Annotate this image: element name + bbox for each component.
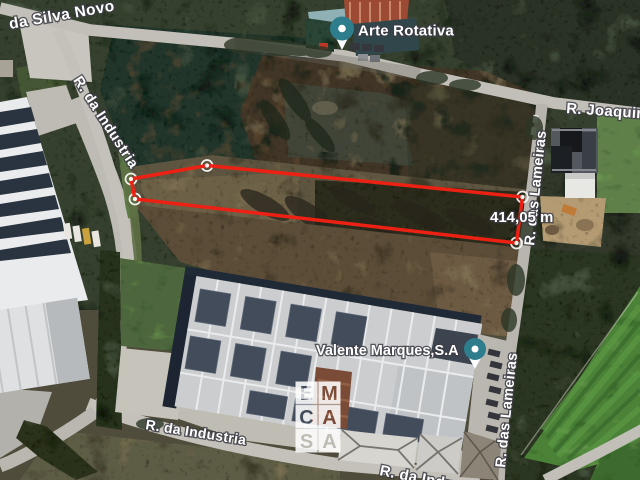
svg-text:Valente Marques,S.A: Valente Marques,S.A	[316, 343, 459, 359]
svg-text:414,05 m: 414,05 m	[490, 209, 553, 226]
svg-text:Arte Rotativa: Arte Rotativa	[358, 23, 454, 40]
